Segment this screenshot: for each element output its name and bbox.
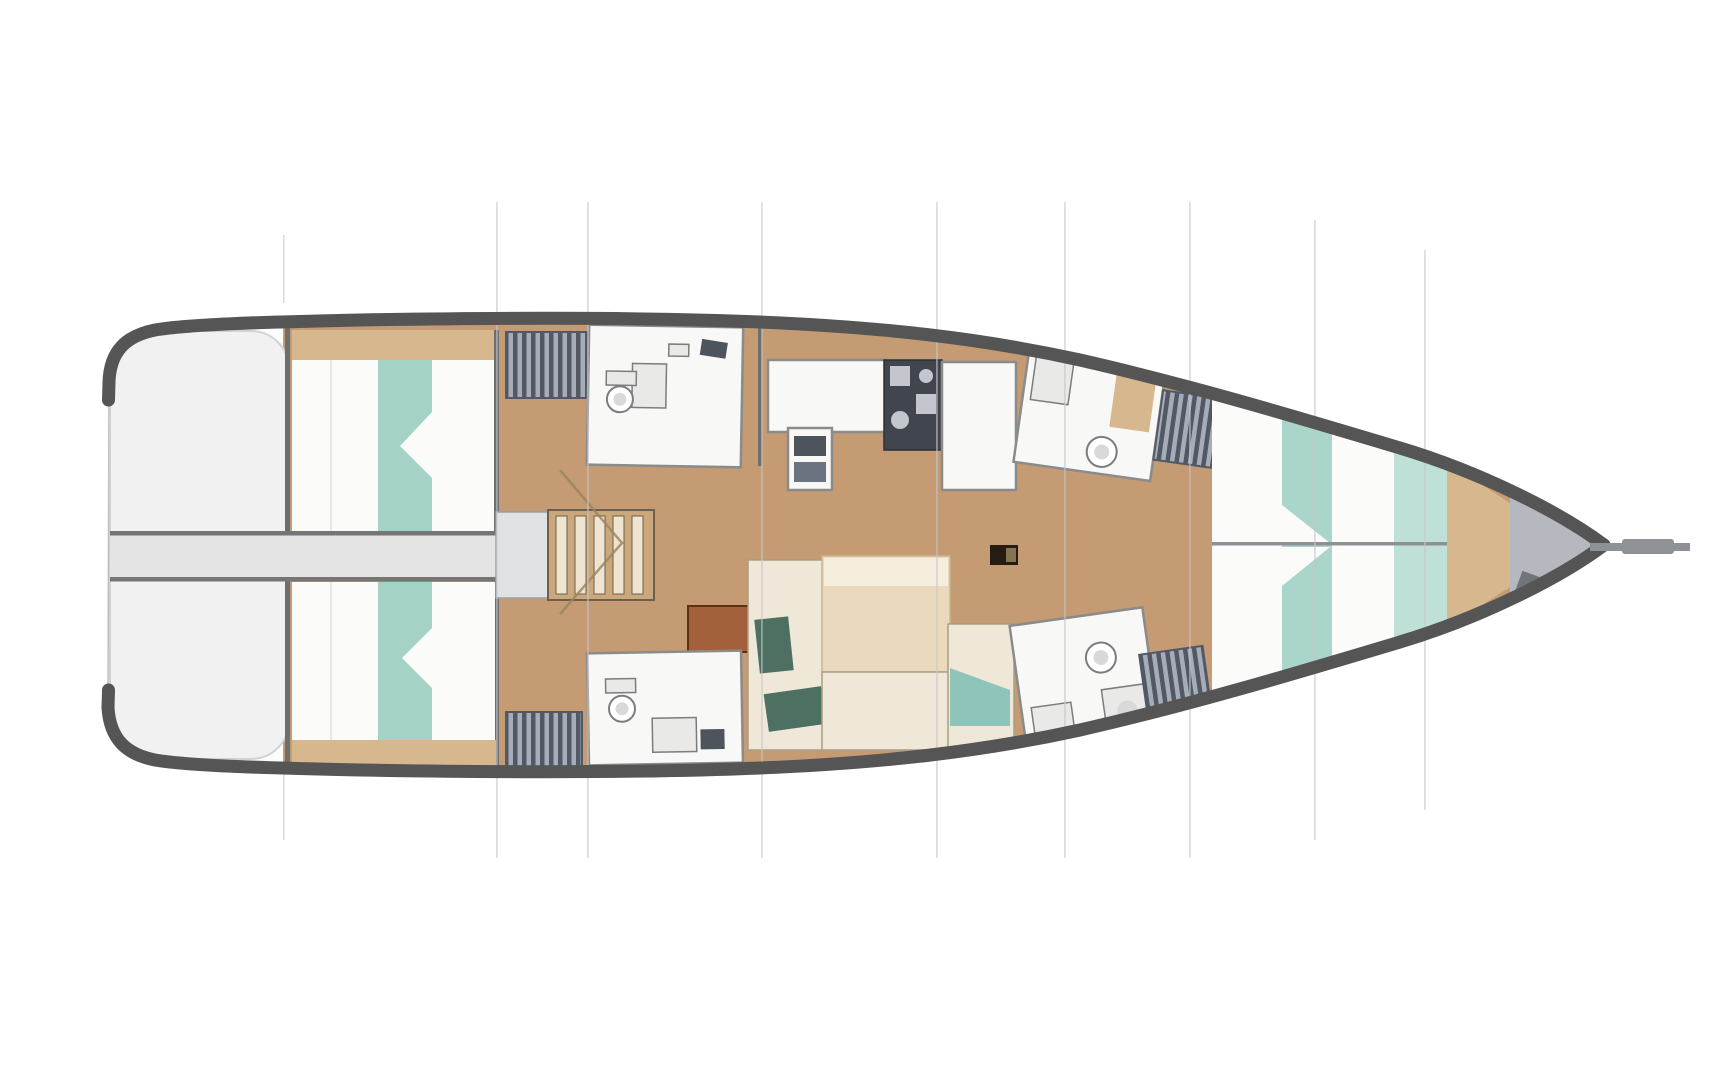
station-line xyxy=(1314,220,1316,840)
green-cushion xyxy=(764,686,827,732)
vanity-counter xyxy=(632,363,667,408)
walkway xyxy=(110,531,530,582)
aft-head-starboard xyxy=(587,651,743,766)
step-tread xyxy=(613,516,624,594)
aft-head-port xyxy=(587,325,743,468)
shelf xyxy=(292,330,496,360)
stove-panel xyxy=(916,394,936,414)
green-cushion xyxy=(754,616,793,673)
locker-stripes xyxy=(1153,390,1220,467)
burner xyxy=(919,369,933,383)
walkway-wall-bottom xyxy=(110,577,530,582)
berth-center-seam xyxy=(1212,542,1457,546)
step-tread xyxy=(632,516,643,594)
aft-cabin-starboard xyxy=(292,582,496,768)
locker-stripes xyxy=(506,332,588,398)
shelf-unit xyxy=(669,344,689,356)
mattress-seam xyxy=(330,360,332,532)
station-line xyxy=(283,768,285,840)
step-tread xyxy=(575,516,586,594)
salon-bench xyxy=(822,672,968,750)
locker-stripes xyxy=(506,712,582,768)
galley-counter-left xyxy=(768,360,886,432)
station-line xyxy=(1189,202,1191,858)
head-fitting xyxy=(700,729,724,749)
galley-sink-unit xyxy=(788,428,832,490)
step-tread xyxy=(594,516,605,594)
walkway-floor xyxy=(110,535,530,577)
station-line xyxy=(587,202,589,858)
toilet-tank xyxy=(606,371,636,386)
mast-post xyxy=(990,545,1018,565)
stove xyxy=(884,360,942,450)
sideboard xyxy=(688,606,750,652)
station-line xyxy=(1064,202,1066,858)
station-line xyxy=(1424,250,1426,810)
locker-hatched-fwd-port xyxy=(1153,390,1220,467)
station-line xyxy=(283,235,285,303)
aft-cabin-port xyxy=(292,330,496,532)
station-line xyxy=(761,202,763,858)
mast-foot-side xyxy=(1006,548,1016,562)
locker-hatched-aft-starboard xyxy=(506,712,582,768)
sink-counter xyxy=(652,717,697,752)
yacht-floorplan-image xyxy=(0,0,1714,1080)
sink-basin xyxy=(794,436,826,456)
walkway-wall-top xyxy=(110,531,530,536)
toilet-tank xyxy=(605,679,635,694)
step-tread xyxy=(556,516,567,594)
galley-counter-right xyxy=(942,362,1016,490)
companionway-landing xyxy=(496,512,548,598)
sink-basin xyxy=(794,462,826,482)
station-line xyxy=(496,202,498,858)
companionway-steps xyxy=(548,510,654,600)
stove-panel xyxy=(890,366,910,386)
burner xyxy=(891,411,909,429)
floorplan-svg xyxy=(0,0,1714,1080)
anchor-roller xyxy=(1622,539,1674,554)
mattress-seam xyxy=(330,582,332,740)
salon-table-leaf xyxy=(824,558,948,586)
locker-hatched-aft-port xyxy=(506,332,588,398)
